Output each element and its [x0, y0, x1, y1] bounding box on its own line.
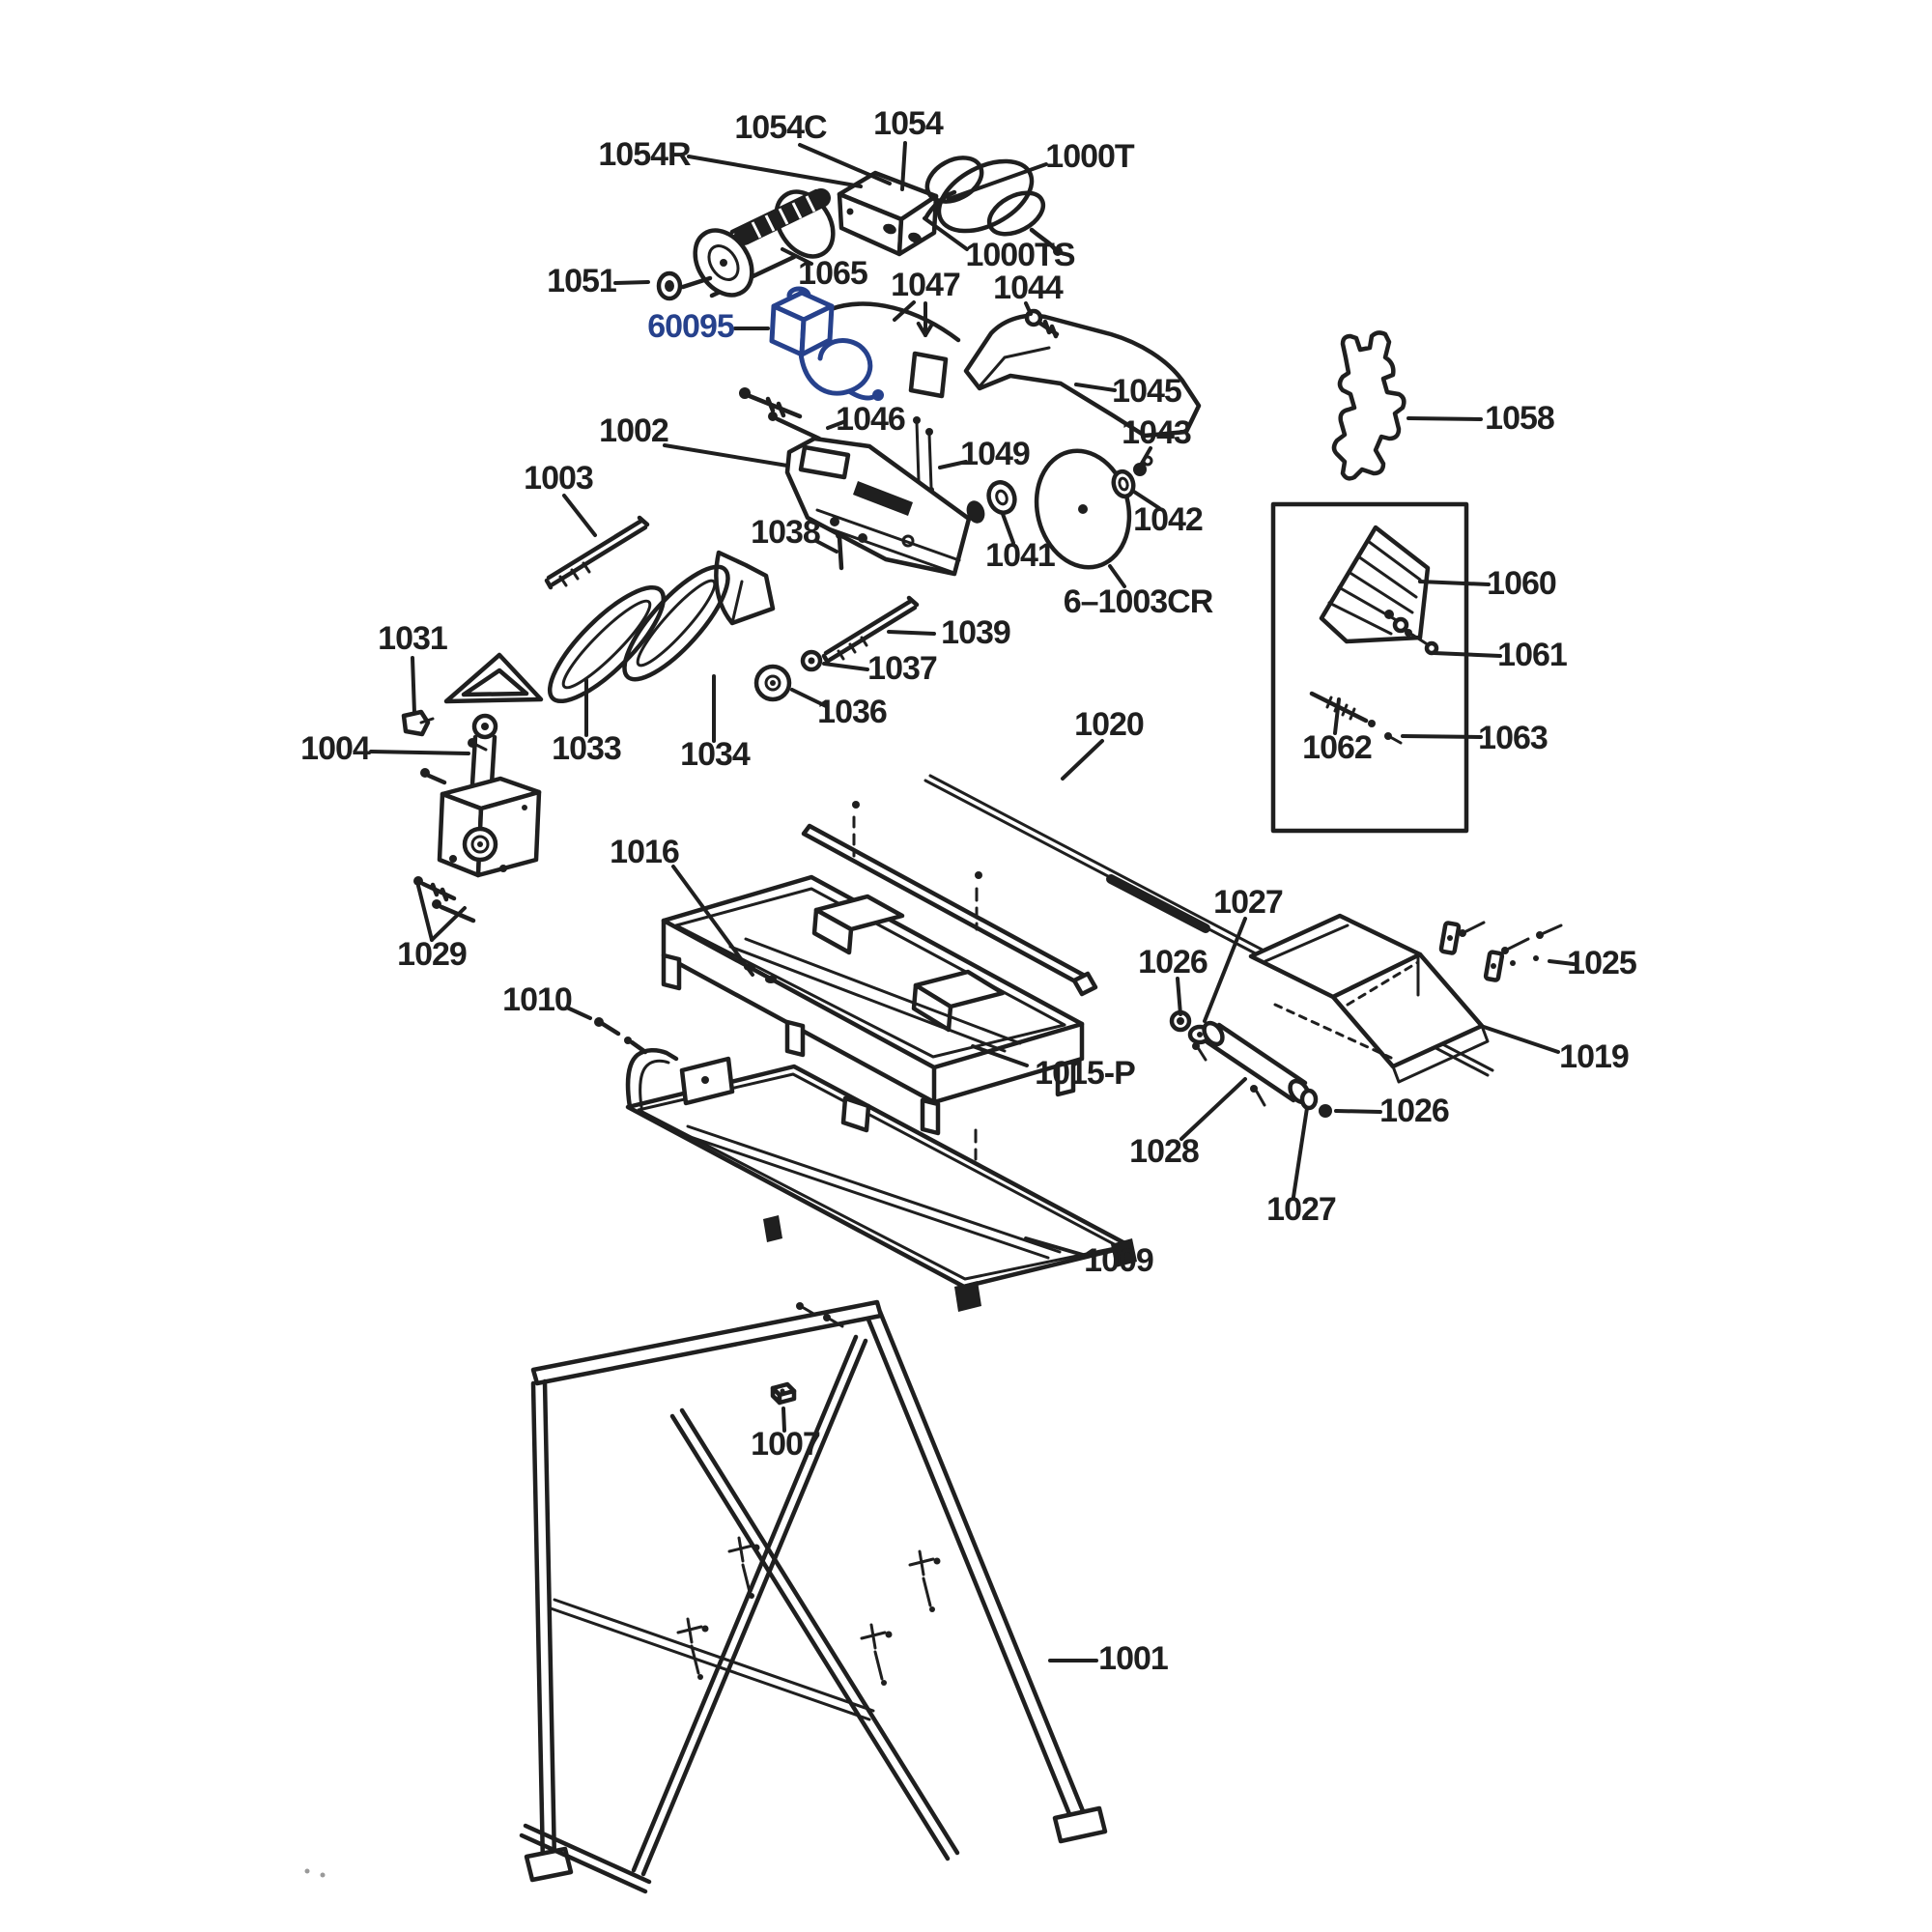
part-label-1007: 1007: [751, 1426, 820, 1463]
pulley-1036: [756, 667, 789, 699]
part-label-1036: 1036: [817, 694, 887, 730]
part-label-1039: 1039: [941, 614, 1010, 651]
arbor-washers: [963, 479, 1018, 526]
part-label-1054: 1054: [873, 105, 944, 142]
clip-1031: [404, 712, 433, 734]
leader-line: [1293, 1108, 1307, 1197]
part-label-1061: 1061: [1497, 637, 1567, 673]
part-label-1026-a: 1026: [1138, 944, 1207, 980]
washer-1042-nut-1043: [1111, 457, 1151, 498]
part-label-1016: 1016: [610, 834, 679, 870]
part-label-1051: 1051: [547, 263, 616, 299]
leader-line: [1336, 1111, 1380, 1112]
part-label-1054R: 1054R: [598, 136, 691, 173]
part-label-1065: 1065: [798, 255, 867, 292]
wedge-1060: [1321, 527, 1428, 641]
belt-1033: [535, 573, 678, 716]
part-label-60095: 60095: [647, 308, 734, 345]
exploded-parts-diagram: 1054C10541000T1054R1000TS105110656009510…: [0, 0, 1932, 1932]
leader-line: [564, 496, 595, 535]
part-label-1027-b: 1027: [1266, 1191, 1336, 1228]
nut-1007: [773, 1384, 794, 1403]
part-label-1063: 1063: [1478, 720, 1548, 756]
ring-1037: [803, 652, 820, 669]
part-label-1049: 1049: [960, 436, 1030, 472]
part-label-1004: 1004: [300, 730, 371, 767]
part-label-1019: 1019: [1559, 1038, 1629, 1075]
leader-line: [1205, 919, 1245, 1021]
leader-line: [371, 752, 469, 753]
leader-line: [412, 658, 414, 713]
part-label-1031: 1031: [378, 620, 447, 657]
part-label-1058: 1058: [1485, 400, 1554, 437]
folding-stand-1001: [522, 1302, 1105, 1891]
part-label-1054C: 1054C: [734, 109, 827, 146]
leader-line: [615, 282, 648, 283]
leader-line: [665, 445, 787, 466]
part-label-1062: 1062: [1302, 729, 1372, 766]
part-label-1033: 1033: [552, 730, 621, 767]
part-label-1010: 1010: [502, 981, 572, 1018]
screws-1046: [739, 387, 819, 439]
part-label-1037: 1037: [867, 650, 937, 687]
leader-line: [1481, 1026, 1558, 1052]
part-label-1046: 1046: [836, 401, 905, 438]
leader-line: [1434, 653, 1500, 656]
leader-line: [1178, 979, 1180, 1014]
part-label-1002: 1002: [599, 412, 668, 449]
part-label-1009: 1009: [1084, 1242, 1153, 1279]
part-label-1000T: 1000T: [1045, 138, 1135, 175]
leader-line: [1420, 582, 1489, 584]
part-label-1029: 1029: [397, 936, 467, 973]
screw-1063: [1384, 732, 1401, 743]
part-label-1038: 1038: [751, 514, 820, 551]
leader-line: [1408, 418, 1481, 419]
part-label-1043: 1043: [1122, 414, 1191, 451]
part-label-1028: 1028: [1129, 1133, 1199, 1170]
part-label-1020: 1020: [1074, 706, 1144, 743]
part-label-1027-a: 1027: [1213, 884, 1283, 921]
washer-1051: [659, 273, 680, 298]
part-label-1034: 1034: [680, 736, 751, 773]
plate-1047: [911, 354, 946, 396]
part-label-1042: 1042: [1133, 501, 1203, 538]
print-artifacts: [305, 1869, 326, 1878]
part-label-1060: 1060: [1487, 565, 1556, 602]
power-cable: [831, 304, 958, 340]
part-label-1026-b: 1026: [1379, 1093, 1449, 1129]
part-label-1045: 1045: [1112, 373, 1181, 410]
fittings-1025: [1441, 923, 1561, 980]
handle-assembly-1004: [420, 655, 541, 875]
part-label-1001: 1001: [1098, 1640, 1168, 1677]
part-label-1041: 1041: [985, 537, 1055, 574]
part-labels: 1054C10541000T1054R1000TS105110656009510…: [300, 105, 1636, 1677]
part-label-1044: 1044: [993, 270, 1064, 306]
leader-line: [418, 886, 432, 940]
pin-1062: [1312, 694, 1376, 727]
part-label-1025: 1025: [1567, 945, 1636, 981]
part-label-1047: 1047: [891, 267, 960, 303]
leader-line: [1181, 1079, 1245, 1139]
part-label-6-1003CR: 6–1003CR: [1064, 583, 1213, 620]
part-label-1003: 1003: [524, 460, 593, 497]
cutting-head-1002: [787, 439, 969, 574]
leader-line: [889, 632, 934, 634]
wrench-1058: [1334, 332, 1404, 478]
leader-line: [1063, 741, 1102, 779]
part-label-1000TS: 1000TS: [965, 237, 1074, 273]
leader-line: [824, 664, 867, 669]
rod-1003: [547, 518, 647, 587]
part-label-1015-P: 1015-P: [1035, 1055, 1135, 1092]
leader-line: [1403, 736, 1481, 737]
